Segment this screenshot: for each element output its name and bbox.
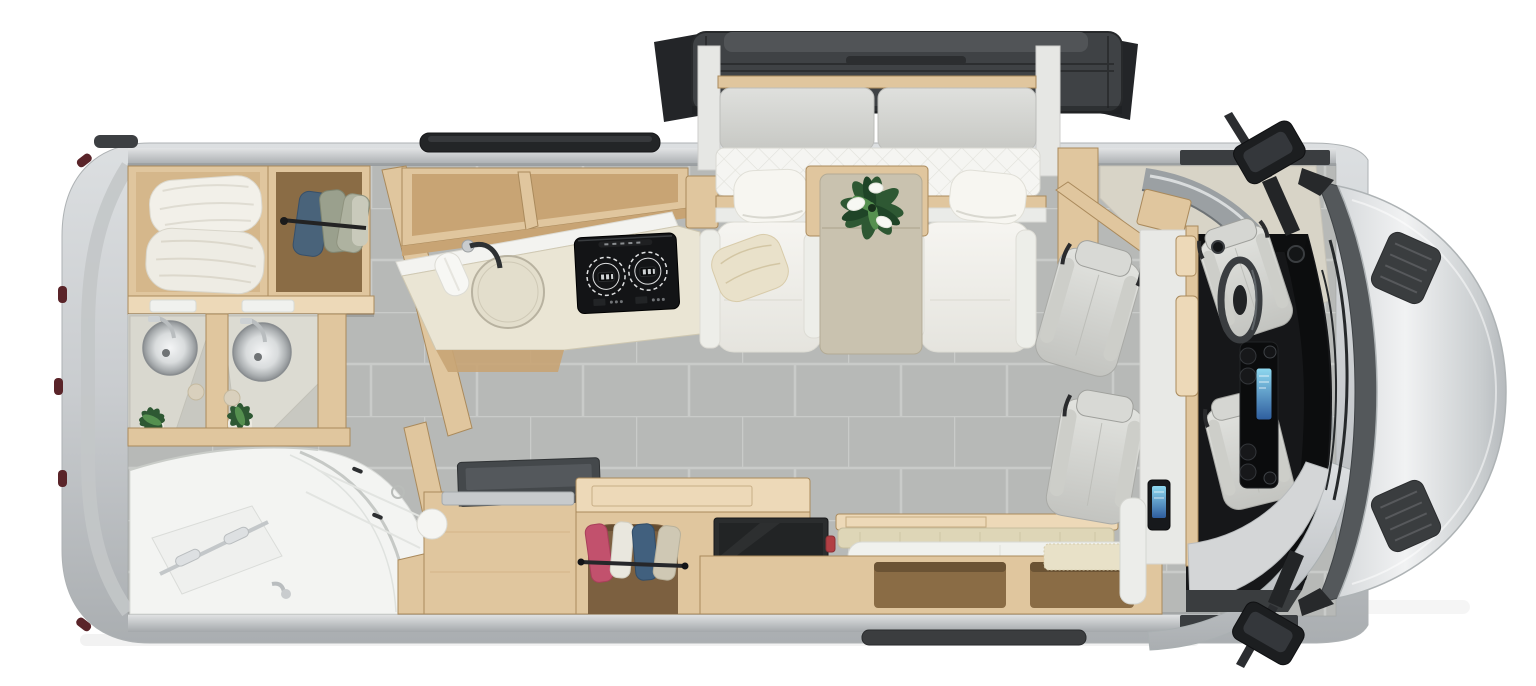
partition-wood-ledge — [1176, 296, 1198, 396]
headboard-wood-strip — [718, 76, 1036, 88]
control-panel-screen — [1152, 486, 1166, 518]
chair-left-arm-outer — [700, 230, 720, 348]
chair-right-headrest — [947, 168, 1028, 226]
vanity-front-band — [128, 428, 350, 446]
roof-vent — [420, 133, 660, 152]
rv-floorplan-render — [0, 0, 1536, 686]
center-console — [1240, 342, 1278, 488]
door-pillar-white — [1120, 498, 1146, 604]
vanity-side-post — [318, 314, 346, 446]
running-board — [862, 630, 1086, 645]
chair-right-base — [920, 222, 1030, 352]
towel-bracket-right — [242, 300, 294, 312]
slide-wall-left — [698, 46, 720, 170]
bottom-wall-band — [128, 614, 1228, 632]
control-panel — [1148, 480, 1170, 530]
induction-cooktop — [574, 233, 680, 314]
chair-left-headrest — [733, 169, 809, 224]
slide-roof-lip — [724, 32, 1088, 52]
wheel-hub — [1233, 285, 1247, 315]
towel-roll — [417, 509, 447, 539]
partition-wood-bracket — [1176, 236, 1196, 276]
hand-shower-head — [281, 589, 291, 599]
vanity-area — [128, 300, 350, 446]
drain-right — [254, 353, 262, 361]
chair-right-arm-outer — [1016, 230, 1036, 348]
rear-cap-antenna — [94, 135, 138, 148]
soap-dish-left — [188, 384, 204, 400]
soap-dish-right — [224, 390, 240, 406]
sofa-back-cushion-left — [720, 88, 874, 150]
counter-front-face — [436, 350, 564, 372]
drain-left — [162, 349, 170, 357]
towel-bracket-left — [150, 300, 196, 312]
linen-cabinet — [128, 166, 268, 298]
closet-rod-end — [280, 217, 288, 225]
wall-tv — [714, 518, 835, 562]
wardrobe-countertop — [576, 478, 810, 514]
silver-tray — [442, 492, 574, 505]
kitchen-lower-cabinet — [424, 492, 576, 614]
plant-right — [227, 403, 253, 430]
faucet-left-handle — [148, 316, 160, 322]
sofa-back-cushion-right — [878, 88, 1036, 150]
console-knob-top — [1264, 346, 1276, 358]
red-switch — [826, 536, 835, 552]
cab-partition — [1140, 226, 1198, 566]
console-knob-bottom — [1264, 472, 1276, 484]
faucet-right-handle — [240, 318, 252, 324]
garment-pale — [352, 196, 368, 246]
vanity-divider — [206, 314, 228, 432]
hanging-closet — [268, 166, 371, 298]
pillow-top — [148, 174, 264, 238]
pillow-bottom — [145, 227, 266, 295]
roof-vent-lip — [428, 136, 652, 142]
floorplan-svg — [0, 0, 1536, 686]
counter-end-wood-cap — [686, 176, 718, 228]
